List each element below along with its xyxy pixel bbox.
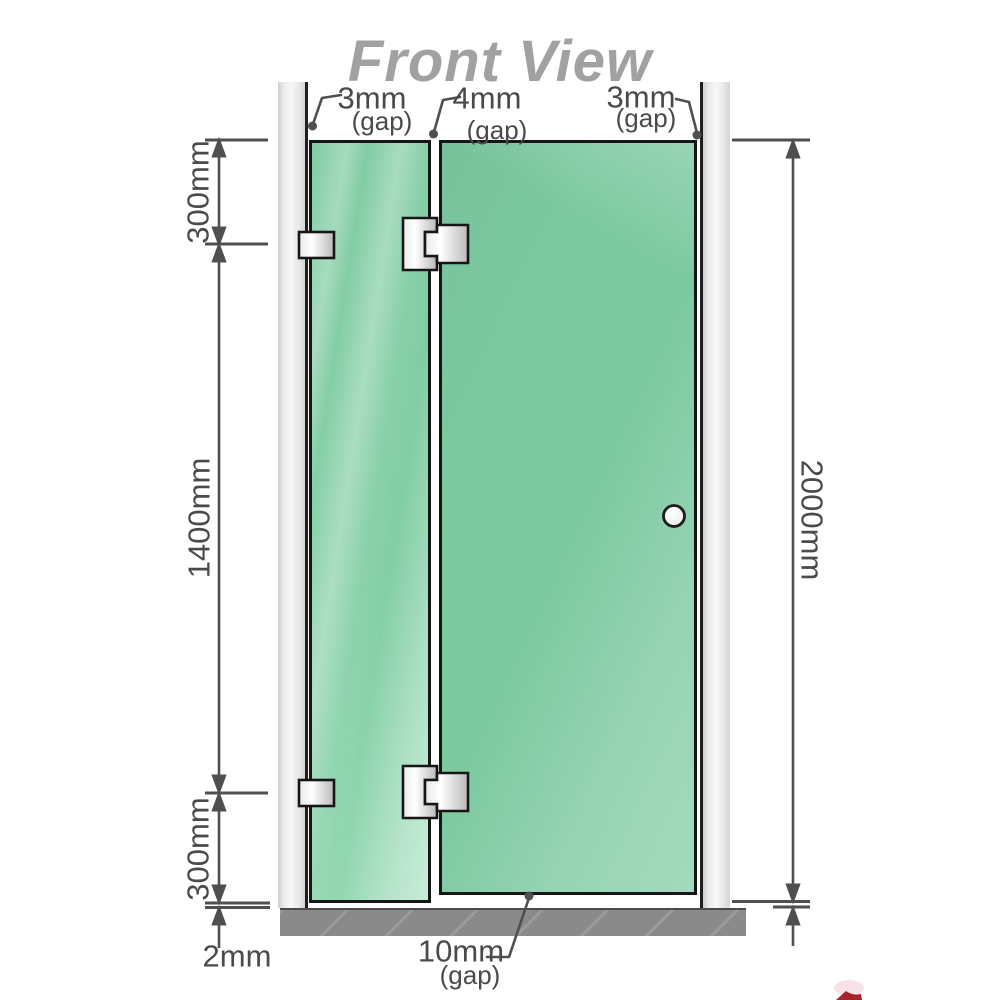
dim-label-left-bottom: 300mm: [183, 797, 214, 900]
dim-label-total-height: 2000mm: [797, 460, 828, 581]
dim-label-left-middle: 1400mm: [184, 458, 215, 579]
floor-base: [280, 908, 746, 936]
fixed-glass-panel: [309, 140, 431, 903]
gap-label-top-left-unit: (gap): [352, 108, 413, 134]
gap-label-top-middle-value: 4mm: [453, 83, 522, 114]
front-view-diagram: Front View: [0, 0, 1000, 1000]
door-glass-panel: [439, 140, 697, 895]
left-wall-channel: [278, 82, 308, 908]
gap-label-top-right-unit: (gap): [616, 105, 677, 131]
dim-label-floor-gap: 2mm: [203, 941, 272, 972]
gap-label-bottom-unit: (gap): [440, 962, 501, 988]
dim-label-left-top: 300mm: [183, 140, 214, 243]
gap-label-top-middle-unit: (gap): [467, 117, 528, 143]
right-wall-channel: [700, 82, 730, 908]
red-logo-mark: [834, 980, 864, 1000]
